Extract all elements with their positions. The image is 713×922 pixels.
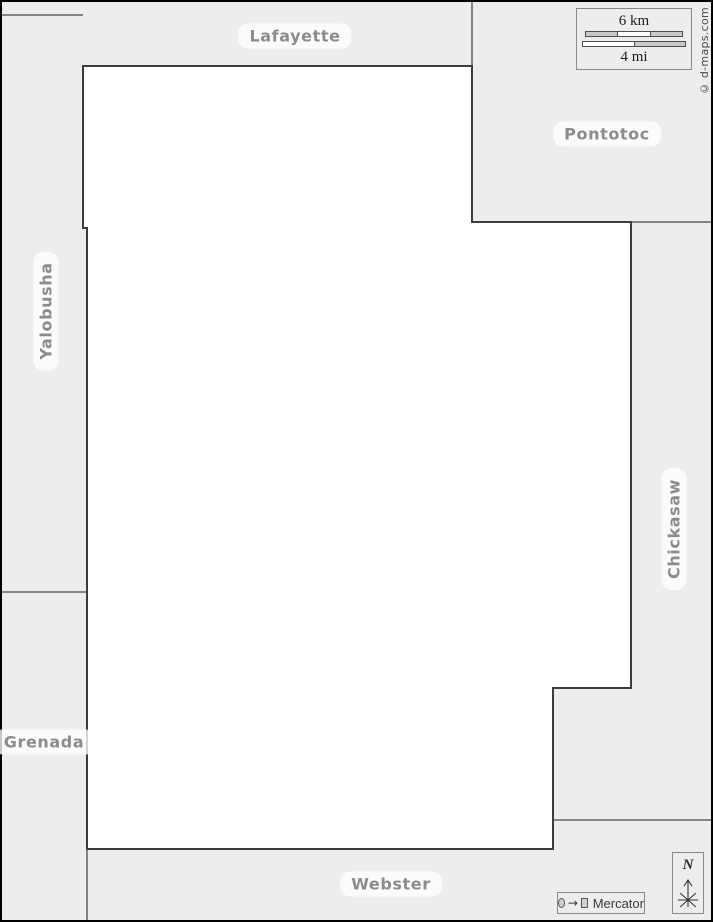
projection-name: Mercator (593, 896, 644, 911)
compass-north-label: N (683, 855, 694, 875)
county-label-lafayette: Lafayette (238, 24, 351, 49)
scale-segment (617, 32, 649, 36)
county-label-grenada: Grenada (0, 730, 95, 755)
county-label-chickasaw: Chickasaw (662, 468, 687, 590)
map-canvas: Lafayette Pontotoc Yalobusha Chickasaw G… (0, 0, 713, 922)
county-label-webster: Webster (340, 872, 442, 897)
scale-segment (634, 42, 686, 46)
projection-badge: → Mercator (557, 892, 645, 914)
scale-segment (586, 32, 617, 36)
scale-mi-bar (582, 41, 686, 47)
scale-bar: 6 km 4 mi (576, 8, 692, 70)
arrow-right-icon: → (568, 898, 578, 908)
scale-mi-label: 4 mi (620, 49, 647, 65)
copyright-text: © d-maps.com (698, 7, 711, 95)
scale-km-bar (585, 31, 683, 37)
flat-map-square-icon (581, 898, 588, 908)
county-label-pontotoc: Pontotoc (553, 122, 661, 147)
scale-segment (650, 32, 682, 36)
north-arrow-icon (674, 875, 702, 913)
scale-segment (583, 42, 634, 46)
compass-rose: N (672, 852, 704, 914)
scale-km-label: 6 km (619, 13, 649, 29)
county-label-yalobusha: Yalobusha (34, 251, 59, 370)
globe-circle-icon (558, 898, 565, 908)
